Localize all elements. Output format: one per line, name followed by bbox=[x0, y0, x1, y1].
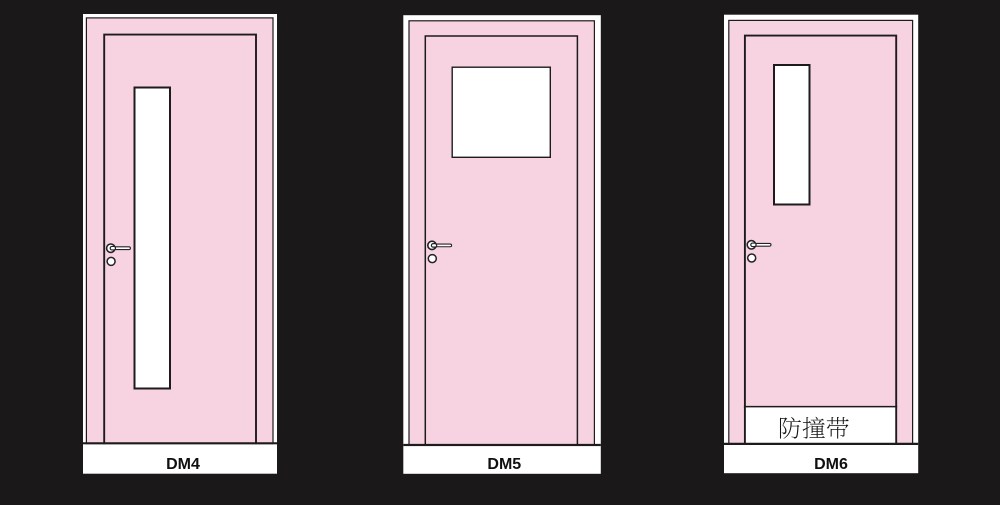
svg-text:DM4: DM4 bbox=[166, 456, 200, 473]
svg-text:DM6: DM6 bbox=[814, 456, 848, 473]
svg-text:DM5: DM5 bbox=[487, 456, 521, 473]
